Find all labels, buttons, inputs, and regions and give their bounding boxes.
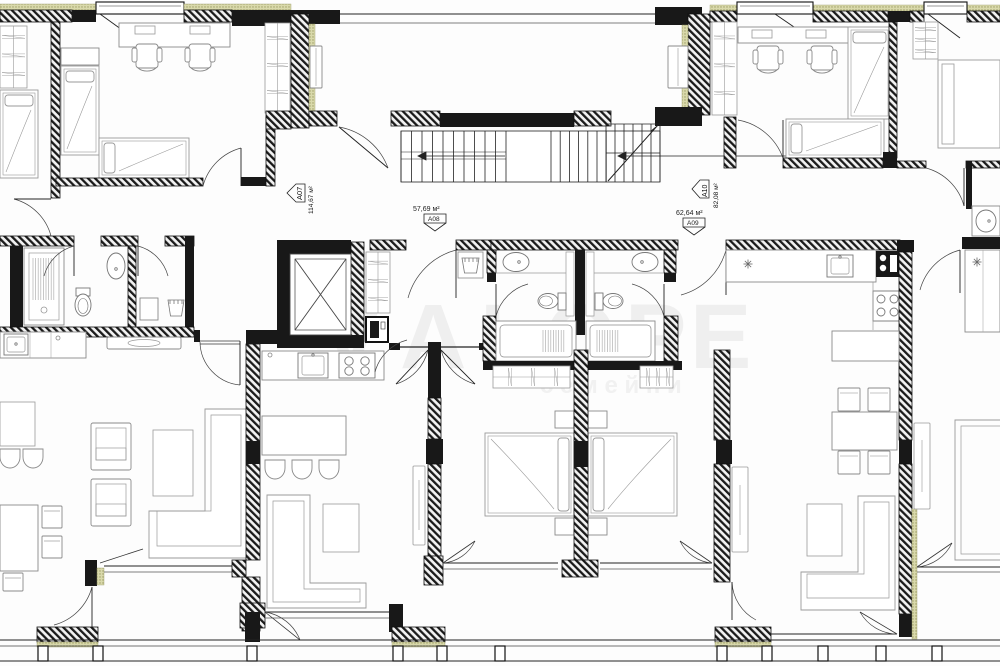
svg-text:A08: A08 xyxy=(428,216,440,223)
svg-text:A09: A09 xyxy=(687,220,699,227)
svg-text:A10: A10 xyxy=(702,184,709,197)
svg-text:57,69 м²: 57,69 м² xyxy=(413,206,440,213)
svg-text:114,67 м²: 114,67 м² xyxy=(308,185,315,214)
svg-text:A07: A07 xyxy=(295,187,304,200)
svg-text:82,08 м²: 82,08 м² xyxy=(713,182,720,208)
svg-text:62,64 м²: 62,64 м² xyxy=(676,210,703,217)
